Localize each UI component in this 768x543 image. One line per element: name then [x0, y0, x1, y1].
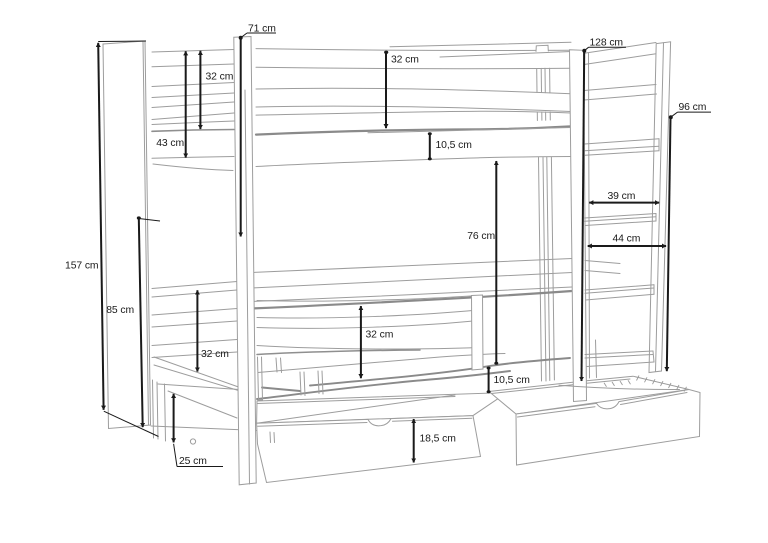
svg-text:32 cm: 32 cm	[366, 330, 394, 341]
svg-text:32 cm: 32 cm	[391, 55, 419, 66]
svg-text:10,5 cm: 10,5 cm	[494, 375, 530, 386]
svg-text:39 cm: 39 cm	[608, 191, 636, 202]
svg-text:128 cm: 128 cm	[590, 37, 623, 48]
svg-text:96 cm: 96 cm	[679, 102, 707, 113]
svg-text:18,5 cm: 18,5 cm	[420, 434, 456, 445]
svg-text:76 cm: 76 cm	[467, 231, 495, 242]
svg-text:10,5 cm: 10,5 cm	[436, 140, 472, 151]
svg-text:71 cm: 71 cm	[248, 24, 276, 35]
svg-text:25 cm: 25 cm	[179, 456, 207, 467]
svg-text:32 cm: 32 cm	[201, 349, 229, 360]
svg-text:85 cm: 85 cm	[106, 305, 134, 316]
svg-text:157 cm: 157 cm	[65, 261, 98, 272]
svg-text:32 cm: 32 cm	[206, 72, 234, 83]
svg-text:44 cm: 44 cm	[613, 234, 641, 245]
svg-text:43 cm: 43 cm	[156, 138, 184, 149]
